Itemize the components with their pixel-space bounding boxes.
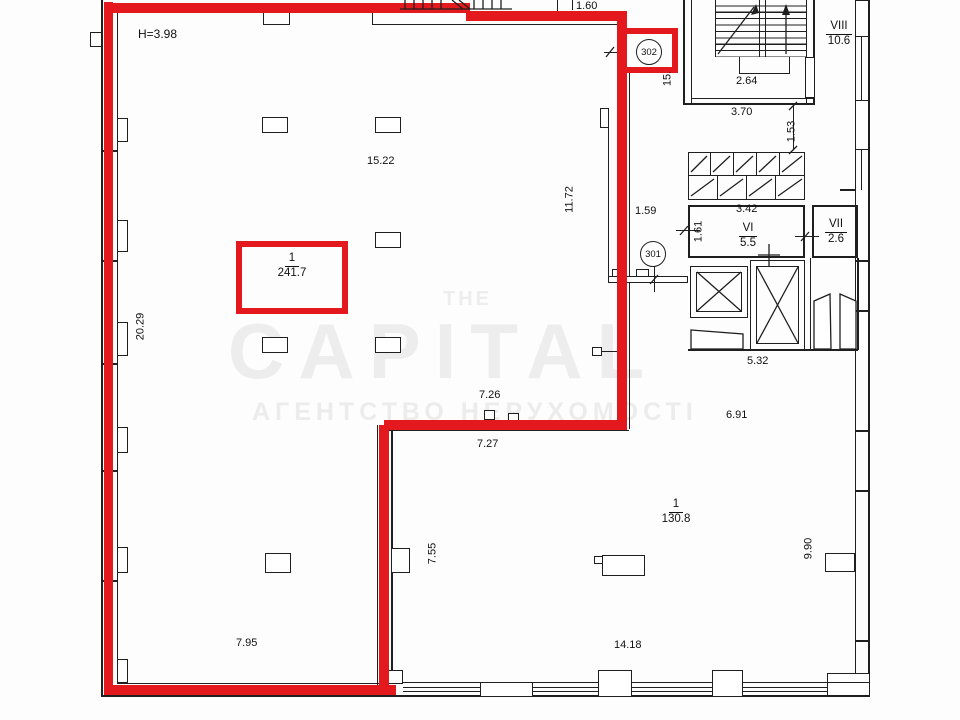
dim-14-18: 14.18 — [614, 640, 642, 651]
dim-7-55: 7.55 — [428, 534, 439, 574]
room-number: VIII — [826, 20, 851, 35]
room-number: VII — [825, 218, 847, 233]
dim-3-42: 3.42 — [736, 204, 757, 215]
room-area: 5.5 — [731, 237, 765, 251]
door-tag-301: 301 — [640, 241, 666, 267]
dim-1-53: 1.53 — [787, 112, 798, 152]
room-label-viii: VIII 10.6 — [818, 20, 860, 49]
room-area: 10.6 — [818, 35, 860, 49]
room-label-130: 1 130.8 — [652, 498, 700, 527]
door-tag-302: 302 — [636, 39, 662, 65]
dim-7-95: 7.95 — [236, 638, 257, 649]
dim-11-72: 11.72 — [565, 180, 576, 220]
dim-7-26: 7.26 — [479, 390, 500, 401]
dim-3-70: 3.70 — [731, 107, 752, 118]
dim-1-59: 1.59 — [635, 206, 656, 217]
ceiling-height-note: H=3.98 — [138, 28, 177, 40]
dim-6-91: 6.91 — [726, 410, 747, 421]
room-label-241: 1 241.7 — [236, 252, 348, 281]
dim-1-60: 1.60 — [576, 1, 597, 12]
dim-9-90: 9.90 — [804, 529, 815, 569]
room-area: 130.8 — [652, 513, 700, 527]
dim-7-27: 7.27 — [477, 439, 498, 450]
plan-linework — [0, 0, 960, 720]
room-number: 1 — [669, 498, 683, 513]
dim-15-cut: 15. — [663, 59, 674, 99]
dim-2-64: 2.64 — [736, 76, 757, 87]
dim-15-22: 15.22 — [367, 156, 395, 167]
room-area: 241.7 — [236, 267, 348, 281]
dim-20-29: 20.29 — [136, 307, 147, 347]
room-number: 1 — [285, 252, 299, 267]
dim-1-61: 1.61 — [694, 212, 705, 252]
room-area: 2.6 — [819, 233, 853, 247]
room-label-vi: VI 5.5 — [731, 222, 765, 251]
room-label-vii: VII 2.6 — [819, 218, 853, 247]
floor-plan: THE CAPITAL АГЕНТСТВО НЕРУХОМОСТІ — [0, 0, 960, 720]
room-number: VI — [739, 222, 758, 237]
dim-5-32: 5.32 — [747, 356, 768, 367]
